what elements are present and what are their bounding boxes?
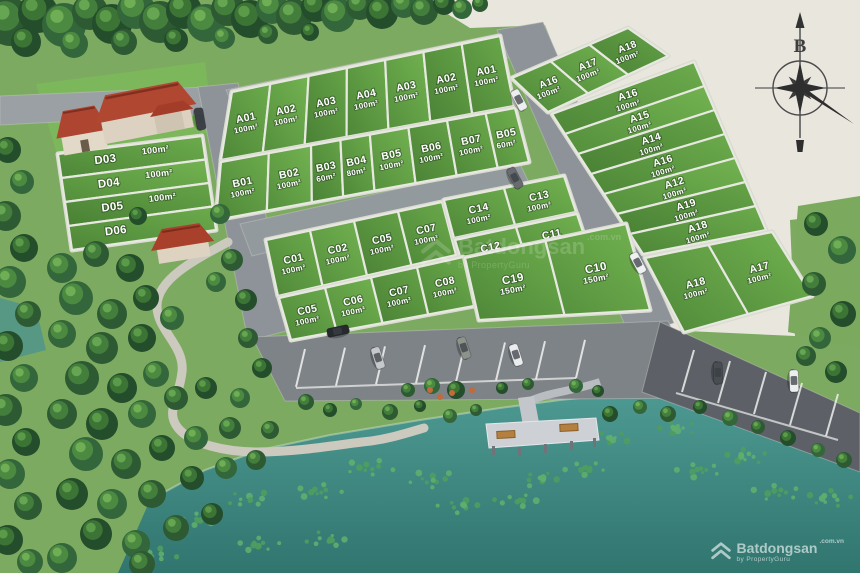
pier-bench [560, 424, 578, 432]
watermark-brand-text: Batdongsan [458, 236, 585, 258]
watermark-tld-text: .com.vn [819, 539, 844, 546]
batdongsan-logo-icon [418, 237, 454, 269]
watermark-byline-text: by PropertyGuru [458, 261, 621, 270]
watermark-byline-text: by PropertyGuru [737, 557, 844, 564]
batdongsan-logo-icon [709, 541, 733, 562]
compass-north-label: B [794, 36, 807, 57]
pier-bench [497, 431, 515, 439]
watermark-brand-text: Batdongsan [737, 541, 818, 555]
watermark-bottom-right: Batdongsan.com.vn by PropertyGuru [709, 541, 844, 564]
watermark-tld-text: .com.vn [587, 233, 621, 242]
site-plan-render: A01100m²A02100m²A03100m²A04100m²A03100m²… [0, 0, 860, 573]
site-plan-image: A01100m²A02100m²A03100m²A04100m²A03100m²… [0, 0, 860, 573]
watermark-center: Batdongsan.com.vn by PropertyGuru [418, 236, 621, 270]
